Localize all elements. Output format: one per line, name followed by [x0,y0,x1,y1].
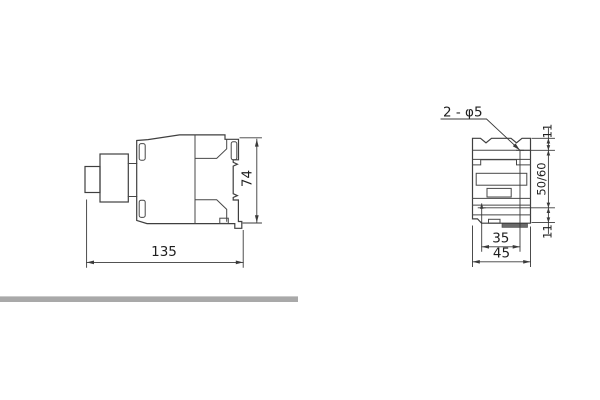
dim-135-arrow-left [87,261,94,265]
divider-bar [0,296,298,302]
dim-74-group: 74 [240,138,262,223]
dimension-drawing-svg: 135 74 [0,0,600,400]
front-view [473,138,531,227]
chain-arrow-hole1-down [547,145,551,150]
chain-arrow-hole2-down [547,203,551,208]
front-small-rect [487,188,511,197]
side-knob-outline [85,167,100,193]
front-nameplate-rect [476,173,527,185]
dim-45-arrow-right [523,260,530,264]
panel-line-with-tab [473,160,531,165]
dim-135-label: 135 [151,244,177,260]
dim-11-bottom-label: 11 [541,224,555,239]
side-neck-lines [128,164,136,197]
side-tab-bottom-left [139,200,145,217]
side-tab-top-left [139,144,145,161]
dim-135-group: 135 [87,200,244,267]
dim-35-arrow-right [513,245,520,249]
side-front-block-outline [100,154,128,202]
side-recess-upper-contour [195,140,227,159]
dim-35-label: 35 [492,231,509,247]
dim-74-arrow-bottom [255,215,259,222]
side-view [85,135,242,228]
dim-holes-group: 2 - φ5 [441,105,520,151]
dim-11-top-label: 11 [541,124,555,139]
technical-drawing-page: 135 74 [0,0,600,400]
dim-45-arrow-left [473,260,480,264]
chain-arrow-bottom-down [547,217,551,222]
dim-35-arrow-left [482,245,489,249]
chain-arrow-hole1-up [547,150,551,155]
dim-50-60-label: 50/60 [535,162,549,195]
side-tab-top-right [231,142,237,160]
dim-74-label: 74 [240,170,256,187]
dim-holes-leader-line [441,119,520,150]
dim-holes-label: 2 - φ5 [443,105,483,121]
front-body-outline [473,138,531,223]
dim-74-arrow-top [255,139,259,146]
dim-45-label: 45 [493,246,510,262]
front-clip-bar [502,224,528,228]
dim-135-arrow-right [236,261,243,265]
chain-arrow-hole2-up [547,208,551,213]
